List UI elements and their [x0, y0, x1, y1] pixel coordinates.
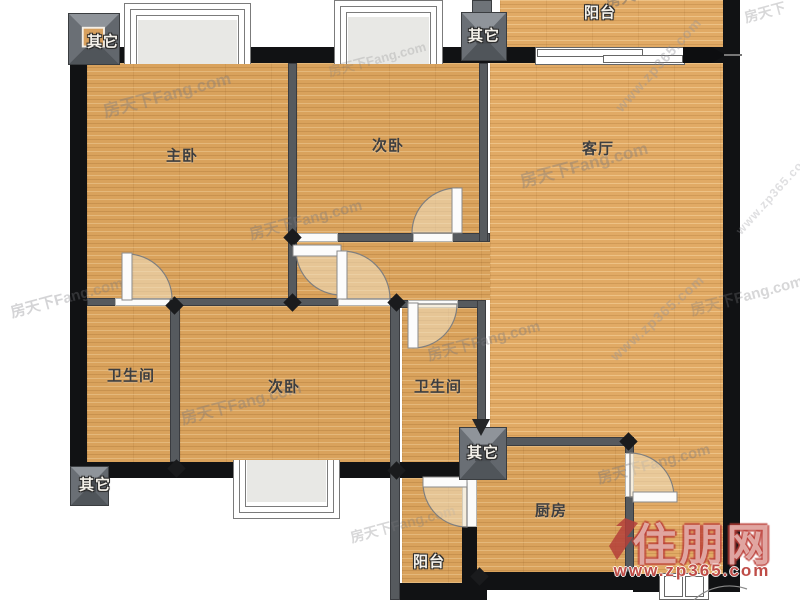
- arrow-down-icon: [472, 419, 490, 436]
- door-leaf: [633, 492, 677, 502]
- door-arc: [412, 188, 457, 233]
- shaft-label: 其它: [468, 25, 500, 46]
- room-label-master-bedroom: 主卧: [166, 145, 198, 166]
- shaft-label: 其它: [79, 474, 111, 495]
- door-arc: [694, 586, 747, 600]
- door-leaf: [293, 245, 341, 256]
- room-label-bathroom-right: 卫生间: [414, 376, 462, 397]
- room-label-second-bedroom-top: 次卧: [372, 135, 404, 156]
- room-label-kitchen: 厨房: [535, 500, 567, 521]
- door-leaf: [452, 188, 462, 233]
- door-leaf: [408, 303, 418, 348]
- door-arc: [296, 250, 341, 295]
- shaft-label: 其它: [467, 442, 499, 463]
- door-arc: [127, 254, 172, 299]
- entry-arrow-icon: [683, 47, 726, 63]
- floorplan-image: 主卧 次卧 客厅 阳台 卫生间 次卧 卫生间 厨房 阳台 其它 其它 其它 其它…: [0, 0, 800, 600]
- shaft-arrow-icon: [472, 419, 490, 436]
- shaft-label: 其它: [87, 31, 119, 52]
- door-arc: [342, 251, 390, 299]
- watermark-zp365-url-red: www.zp365.com: [614, 561, 771, 581]
- room-label-balcony-bottom: 阳台: [413, 551, 445, 572]
- room-label-bathroom-left: 卫生间: [107, 365, 155, 386]
- door-arc: [630, 453, 674, 497]
- room-label-second-bedroom-bottom: 次卧: [268, 376, 300, 397]
- door-leaf: [337, 251, 347, 299]
- room-label-balcony-top: 阳台: [584, 2, 616, 23]
- room-label-living-room: 客厅: [582, 138, 614, 159]
- door-leaf: [122, 253, 132, 300]
- door-arc: [413, 304, 457, 348]
- door-arc: [423, 483, 467, 527]
